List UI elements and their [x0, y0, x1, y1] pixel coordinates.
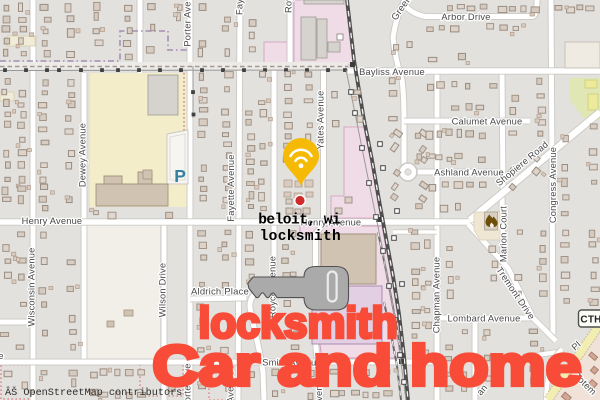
svg-text:Yates Avenue: Yates Avenue	[316, 91, 326, 150]
svg-text:Dewey Avenue: Dewey Avenue	[78, 123, 88, 187]
svg-text:P: P	[174, 166, 186, 186]
svg-text:Aldrich Place: Aldrich Place	[191, 287, 249, 298]
svg-text:Lombard Avenue: Lombard Avenue	[448, 314, 521, 324]
svg-text:Marion Court: Marion Court	[499, 206, 509, 262]
svg-text:ÂŠ OpenStreetMap contributors: ÂŠ OpenStreetMap contributors	[5, 385, 182, 399]
svg-text:Chapman Avenue: Chapman Avenue	[432, 257, 442, 334]
svg-text:Fayette Avenue: Fayette Avenue	[235, 0, 245, 15]
svg-text:Bayliss Avenue: Bayliss Avenue	[359, 67, 425, 77]
svg-text:Porter Ave: Porter Ave	[183, 1, 193, 46]
svg-text:Congress Avenue: Congress Avenue	[548, 147, 558, 223]
svg-text:Royce Avenue: Royce Avenue	[284, 0, 294, 13]
svg-text:Fayette Avenue: Fayette Avenue	[226, 154, 236, 221]
svg-text:Arbor Drive: Arbor Drive	[441, 12, 490, 22]
svg-text:Ashland Avenue: Ashland Avenue	[434, 168, 504, 178]
svg-text:Car and home: Car and home	[153, 334, 582, 398]
svg-text:Calumet Avenue: Calumet Avenue	[452, 117, 523, 127]
svg-text:locksmith: locksmith	[260, 229, 341, 245]
svg-text:beloit, wi: beloit, wi	[258, 213, 341, 229]
svg-text:Wisconsin Avenue: Wisconsin Avenue	[27, 248, 37, 327]
svg-text:Henry Avenue: Henry Avenue	[22, 216, 83, 226]
svg-text:Wilson Drive: Wilson Drive	[158, 263, 168, 318]
svg-text:e: e	[0, 351, 4, 361]
svg-text:CTH: CTH	[580, 315, 600, 326]
